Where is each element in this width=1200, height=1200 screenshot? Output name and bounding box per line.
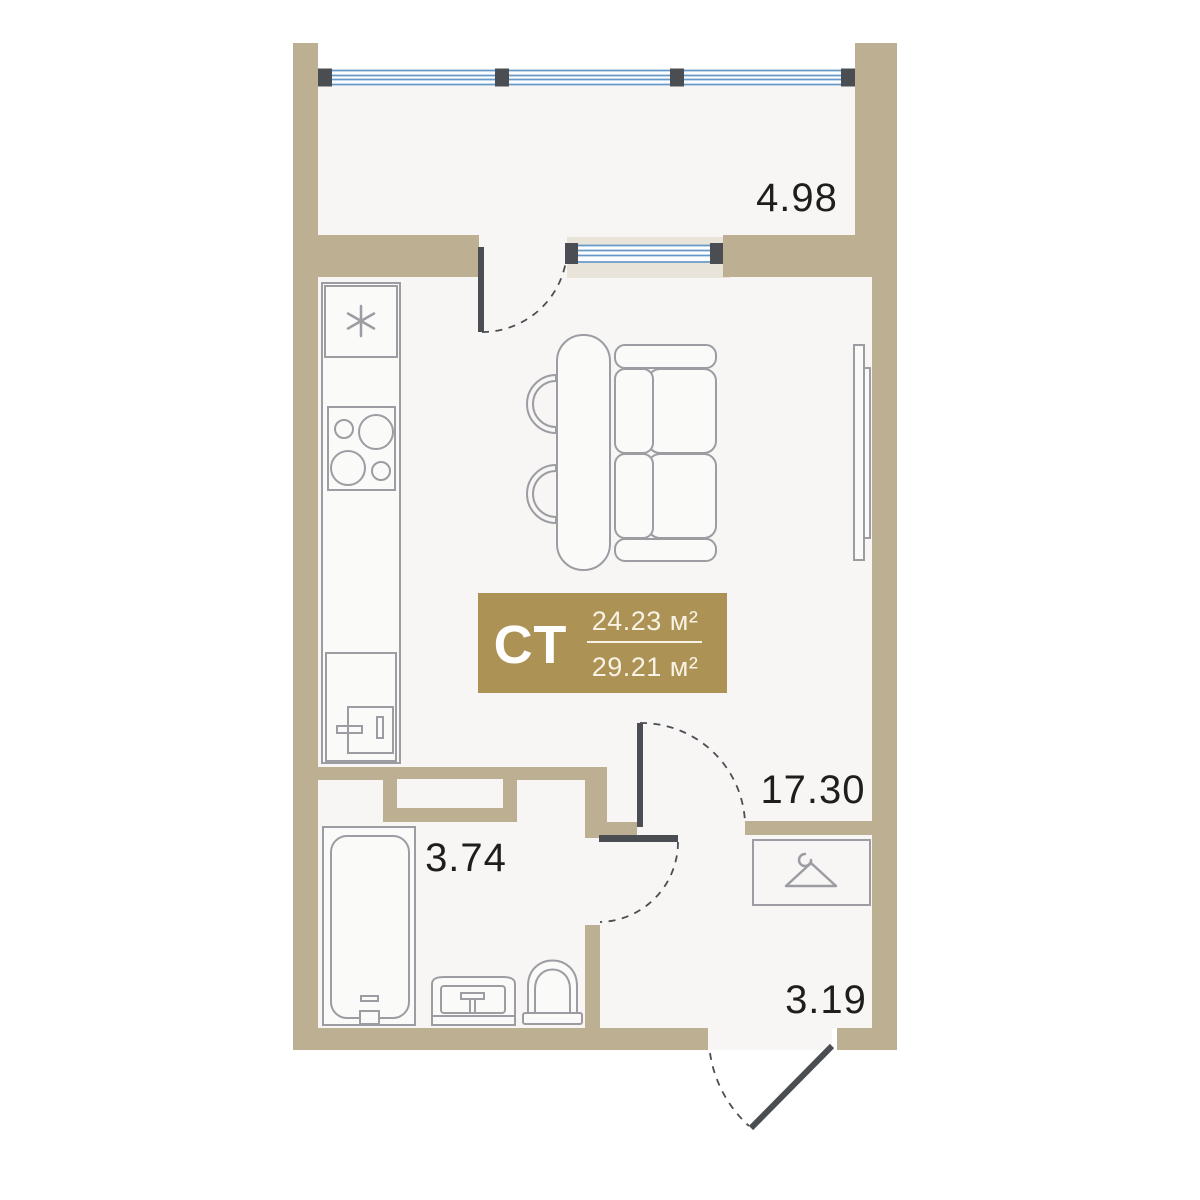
bottom-wall-left (293, 1028, 708, 1050)
kitchen (322, 283, 400, 763)
window-mullion (841, 69, 855, 87)
left-wall (293, 43, 318, 1050)
kitchen-counter (322, 283, 400, 763)
sofa-seat-cushion (648, 369, 716, 453)
balcony-window (318, 69, 855, 87)
tv-panel (854, 345, 864, 560)
unit-area-lower: 29.21 м² (592, 652, 699, 682)
toilet-base (523, 1013, 582, 1024)
window-mullion (710, 243, 723, 264)
sofa-back-cushion (615, 454, 653, 538)
bathroom-right-wall-lower (585, 925, 600, 1028)
sofa-armrest-bottom (615, 539, 716, 561)
bathroom-sink (432, 977, 515, 1025)
window-mullion (670, 69, 684, 87)
kitchen-bathroom-divider-wall (318, 767, 607, 780)
balcony-window-glass (318, 70, 855, 85)
unit-area-upper: 24.23 м² (592, 606, 699, 636)
living-room-window (565, 243, 723, 264)
balcony-area-label: 4.98 (756, 176, 838, 220)
balcony-divider-wall-right (723, 235, 872, 277)
bathroom-area-label: 3.74 (425, 836, 507, 880)
sofa-back-cushion (615, 369, 653, 453)
entrance-door-hinge-gap (832, 1028, 837, 1050)
hallway-divider-wall (745, 821, 872, 835)
entrance-door-swing (710, 1053, 749, 1126)
living-room-door-leaf (637, 723, 643, 827)
window-mullion (318, 69, 332, 87)
dining-table (557, 335, 610, 570)
sofa (615, 345, 716, 561)
balcony-door-leaf (478, 247, 484, 332)
entrance-door-leaf (751, 1046, 832, 1128)
sofa-seat-cushion (648, 454, 716, 538)
hallway-area-label: 3.19 (785, 978, 867, 1022)
bathroom-door-leaf (599, 835, 678, 842)
window-mullion (495, 69, 509, 87)
duct-niche-floor (397, 779, 503, 808)
sofa-armrest-top (615, 345, 716, 368)
living-room-area-label: 17.30 (760, 768, 865, 812)
tv (854, 345, 870, 560)
unit-type-label: СТ (494, 615, 569, 675)
bathtub-notch (360, 1011, 379, 1024)
bottom-wall-right (837, 1028, 897, 1050)
right-wall (872, 235, 897, 1050)
unit-info-card: СТ 24.23 м² 29.21 м² (478, 593, 727, 693)
bathroom-right-wall-upper (585, 780, 607, 828)
floor-plan: 4.98 17.30 3.74 3.19 СТ 24.23 м² 29.21 м… (0, 0, 1200, 1200)
floor-plan-svg: 4.98 17.30 3.74 3.19 СТ 24.23 м² 29.21 м… (0, 0, 1200, 1200)
balcony-divider-wall-left (293, 235, 479, 277)
living-room-window-glass (565, 245, 723, 263)
